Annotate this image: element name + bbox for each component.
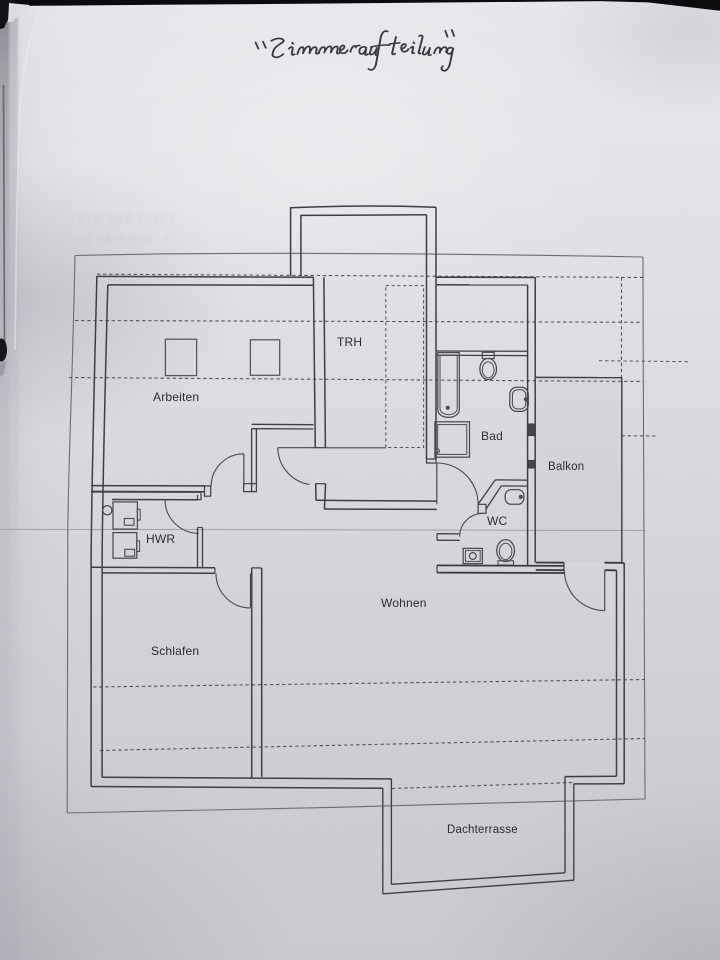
svg-text:Arbeiten: Arbeiten [153, 390, 199, 404]
svg-text:ce: ce [148, 212, 161, 226]
svg-text:Dachterrasse: Dachterrasse [447, 824, 518, 836]
svg-text:Wohnen: Wohnen [381, 596, 427, 610]
svg-text:TRH: TRH [337, 335, 362, 349]
svg-text:Balkon: Balkon [548, 461, 584, 473]
svg-text:ol 06 AGRO t: ol 06 AGRO t [78, 231, 170, 246]
svg-text:HWR: HWR [146, 532, 175, 546]
svg-text:Schlafen: Schlafen [151, 644, 199, 658]
svg-text:WC: WC [487, 514, 508, 528]
svg-text:Bad: Bad [481, 429, 503, 443]
